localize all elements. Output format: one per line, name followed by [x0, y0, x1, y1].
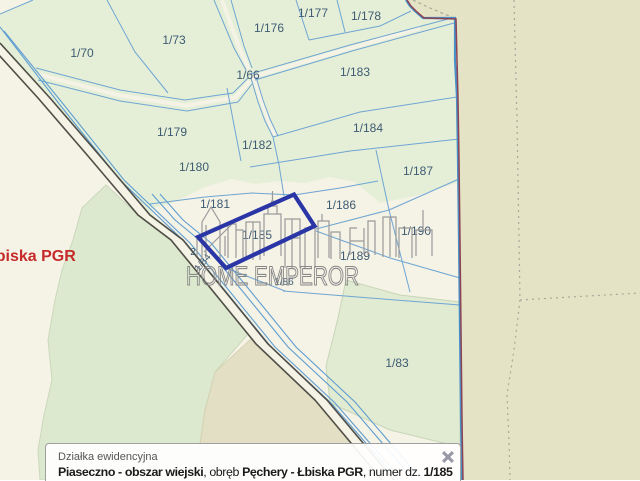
svg-text:1/66: 1/66: [236, 68, 260, 82]
svg-text:1/177: 1/177: [298, 6, 328, 20]
svg-text:1/178: 1/178: [351, 9, 381, 23]
svg-text:1/187: 1/187: [403, 164, 433, 178]
svg-text:Łbiska PGR: Łbiska PGR: [0, 248, 76, 265]
svg-text:1/179: 1/179: [157, 125, 187, 139]
svg-text:1/176: 1/176: [254, 21, 284, 35]
svg-text:1/181: 1/181: [200, 197, 230, 211]
svg-text:1/180: 1/180: [179, 160, 209, 174]
svg-text:1/186: 1/186: [326, 198, 356, 212]
svg-text:2: 2: [190, 247, 196, 258]
svg-text:1/73: 1/73: [162, 33, 186, 47]
svg-text:1/70: 1/70: [70, 46, 94, 60]
svg-text:1/83: 1/83: [385, 356, 409, 370]
svg-text:HOME EMPEROR: HOME EMPEROR: [186, 261, 359, 291]
svg-text:1/183: 1/183: [340, 65, 370, 79]
svg-text:1/184: 1/184: [353, 121, 383, 135]
svg-text:1/182: 1/182: [242, 138, 272, 152]
